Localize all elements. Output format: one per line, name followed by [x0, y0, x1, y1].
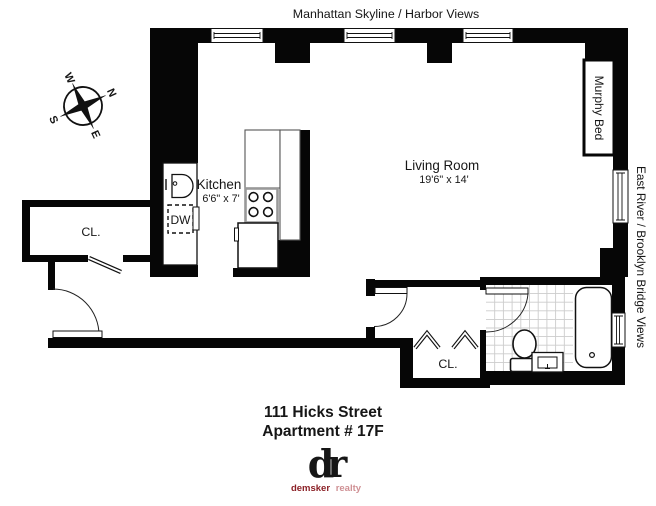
wall-segment — [600, 248, 628, 277]
fridge-handle — [235, 228, 239, 241]
kitchen-dims: 6'6" x 7' — [202, 193, 239, 205]
murphy-bed: Murphy Bed — [584, 60, 614, 155]
closet2-bifold-doors — [415, 333, 477, 348]
floorplan-canvas: Murphy Bed N E S W Manhattan Skyline / H… — [0, 0, 656, 506]
living-room-label: Living Room — [405, 158, 479, 173]
brand-monogram: dr — [308, 441, 349, 486]
fridge — [238, 223, 278, 268]
closet1-label: CL. — [81, 225, 100, 239]
wall-segment — [513, 28, 628, 43]
wall-segment — [480, 371, 625, 385]
wall-column — [427, 43, 452, 63]
compass-s: S — [46, 114, 60, 126]
dishwasher-label: DW — [171, 213, 192, 227]
wall-segment — [480, 330, 486, 378]
brand-logo: dr demsker realty — [291, 441, 362, 494]
hall-door — [374, 288, 407, 327]
view-label-side: East River / Brooklyn Bridge Views — [634, 166, 648, 348]
wall-segment — [48, 338, 413, 348]
wall-segment — [612, 277, 625, 313]
dishwasher-door — [193, 207, 199, 230]
entry-door — [53, 289, 102, 338]
wall-segment — [480, 277, 486, 290]
wall-column — [275, 43, 310, 63]
tub-drain — [590, 353, 595, 358]
door-leaf — [53, 331, 102, 338]
floorplan-page: Murphy Bed N E S W Manhattan Skyline / H… — [0, 0, 656, 506]
wall-segment — [22, 200, 153, 207]
compass-star — [50, 73, 116, 139]
door-swing-arc — [53, 289, 99, 335]
wall-segment — [233, 268, 277, 277]
compass-w: W — [61, 71, 77, 86]
window-top-1 — [211, 29, 263, 43]
upper-cabinet — [245, 130, 280, 188]
wall-segment — [400, 378, 490, 388]
closet1-door — [89, 258, 121, 272]
wall-segment — [277, 240, 310, 277]
brand-name-main: demsker — [291, 483, 330, 494]
wall-segment — [374, 280, 480, 287]
living-room-dims: 19'6" x 14' — [419, 174, 468, 186]
kitchen-sink — [172, 175, 193, 198]
kitchen-label: Kitchen — [197, 177, 242, 192]
view-label-top: Manhattan Skyline / Harbor Views — [293, 7, 479, 21]
address-line2: Apartment # 17F — [262, 423, 383, 440]
wall-segment — [585, 43, 613, 60]
wall-segment — [300, 130, 310, 240]
wall-segment — [366, 279, 375, 296]
window-top-2 — [344, 29, 395, 43]
door-swing-arc — [374, 294, 407, 327]
wall-segment — [150, 28, 198, 163]
wall-segment — [366, 327, 375, 340]
faucet — [173, 182, 177, 186]
window-right — [613, 170, 628, 223]
brand-name-suffix: realty — [336, 483, 362, 494]
closet2-label: CL. — [438, 357, 457, 371]
wall-segment — [480, 277, 620, 285]
compass-rose: N E S W — [32, 58, 131, 154]
wall-segment — [395, 28, 463, 43]
wall-segment — [48, 260, 55, 290]
murphy-bed-label: Murphy Bed — [592, 76, 606, 141]
wall-segment — [22, 200, 30, 262]
compass-e: E — [88, 129, 102, 141]
tall-cabinet — [280, 130, 300, 240]
brand-name: demsker realty — [291, 483, 362, 494]
wall-segment — [150, 265, 198, 277]
door-leaf — [375, 288, 407, 294]
address-line1: 111 Hicks Street — [264, 404, 382, 421]
window-bathroom — [612, 313, 625, 347]
compass-n: N — [104, 87, 118, 99]
door-leaf — [486, 288, 528, 294]
wall-segment — [123, 255, 153, 262]
window-top-3 — [463, 29, 513, 43]
wall-segment — [263, 28, 344, 43]
wall-segment — [612, 347, 625, 385]
